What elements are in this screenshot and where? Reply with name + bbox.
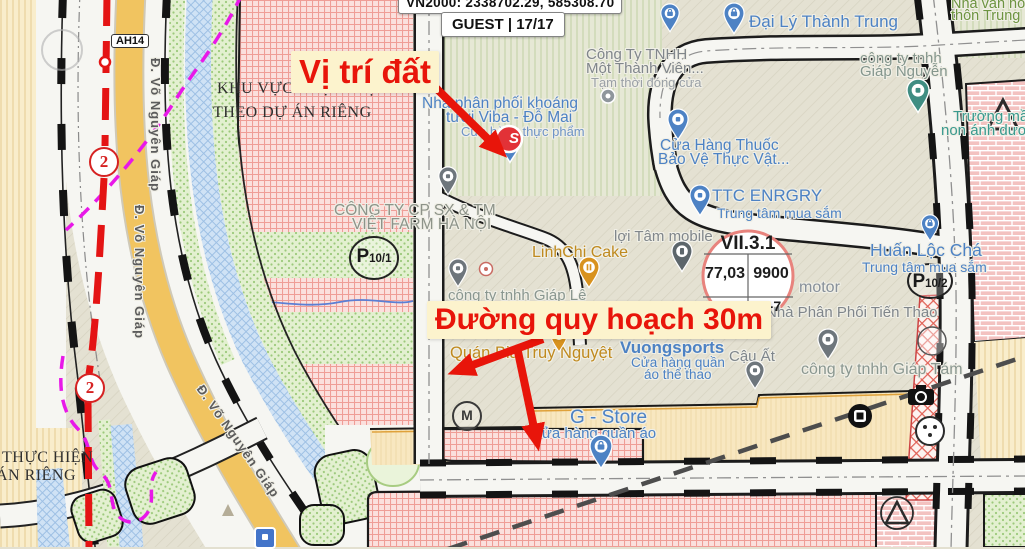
poi-label-quan-bia[interactable]: Quán Bia Truy Nguyệt <box>450 344 612 363</box>
poi-label-vuongsports-l3: áo thể thao <box>644 367 712 382</box>
pin-cau-at[interactable] <box>744 360 766 390</box>
plot-cell-a: 77,03 <box>704 265 746 283</box>
annotation-site-label: Vị trí đất <box>291 51 439 93</box>
pin-loi-tam-mobile[interactable] <box>670 240 694 273</box>
poi-label-truong-mam-non-l2[interactable]: non ánh dương <box>941 122 1025 139</box>
zone-note-sw-line1: THỰC HIỆN <box>2 449 93 467</box>
poi-label-huan-loc-l1[interactable]: Huấn Lộc Chá <box>870 240 982 261</box>
parking-sub: 10/2 <box>925 278 947 290</box>
poi-label-ttc-l1[interactable]: TTC ENRGRY <box>712 186 822 206</box>
pin-cua-hang-thuoc[interactable] <box>666 108 690 141</box>
poi-label-tien-thao[interactable]: Nhà Phân Phối Tiến Thao <box>766 304 938 321</box>
parking-badge-10-1: P10/1 <box>352 246 396 268</box>
m-letter: M <box>461 407 473 423</box>
highway-shield-ah14: AH14 <box>111 34 149 48</box>
pin-viet-farm-area[interactable] <box>447 258 469 288</box>
pin-g-store[interactable] <box>588 434 614 470</box>
road-label-vo-nguyen-giap-2: Đ. Võ Nguyên Giáp <box>132 205 147 339</box>
empty-circle-icon <box>918 327 946 355</box>
parking-sub: 10/1 <box>369 253 391 265</box>
zone-note-sw-line2: ÁN RIÊNG <box>0 467 76 485</box>
parking-badge-10-2: P10/2 <box>908 271 952 293</box>
poi-label-motor[interactable]: motor <box>799 279 840 297</box>
pin-dai-ly-thanh-trung[interactable] <box>722 2 746 35</box>
pin-ttc-enrgry[interactable] <box>688 184 712 217</box>
pin-giap-nguyen[interactable] <box>905 78 931 114</box>
parking-p: P <box>356 246 369 267</box>
poi-label-giap-nguyen-l2[interactable]: Giáp Nguyễn <box>860 63 948 80</box>
poi-label-viet-farm-l2[interactable]: VIỆT FARM HÀ NỘI <box>352 216 491 234</box>
planning-map-screenshot: { "header": { "coords": "VN2000: 2338702… <box>0 0 1025 547</box>
site-logo-letter: S <box>509 130 519 147</box>
plot-code: VII.3.1 <box>714 233 782 255</box>
pin-store-top-1[interactable] <box>659 3 681 33</box>
road-label-vo-nguyen-giap-1: Đ. Võ Nguyên Giáp <box>148 58 163 192</box>
pin-nha-phan-phoi[interactable] <box>437 166 459 196</box>
poi-label-giap-tam[interactable]: công ty tnhh Giáp Tám <box>801 361 963 379</box>
poi-label-ttc-l2: Trung tâm mua sắm <box>717 205 842 221</box>
zone-note-line2: THEO DỰ ÁN RIÊNG <box>213 104 372 122</box>
plot-cell-b: 9900 <box>750 265 792 283</box>
transit-station-icon[interactable] <box>254 527 276 549</box>
route-2-badge-1: 2 <box>89 147 119 177</box>
parking-p: P <box>912 271 925 292</box>
poi-label-loi-tam[interactable]: lợi Tâm mobile <box>614 228 713 245</box>
pin-linhchi-cake[interactable] <box>577 256 601 289</box>
poi-label-cong-ty-mtv-l3: Tạm thời đóng cửa <box>591 75 701 90</box>
poi-label-nha-van-hoa-l2[interactable]: thôn Trung <box>951 8 1020 24</box>
pin-giap-tam[interactable] <box>816 328 840 361</box>
pin-huan-loc[interactable] <box>920 214 940 242</box>
poi-label-dai-ly-thanh-trung[interactable]: Đại Lý Thành Trung <box>749 12 898 32</box>
annotation-road-label: Đường quy hoạch 30m <box>427 301 771 339</box>
poi-label-cua-hang-thuoc-l2[interactable]: Bảo Vệ Thực Vật... <box>658 151 790 169</box>
route-2-badge-2: 2 <box>75 373 105 403</box>
m-emblem-icon: M <box>452 401 482 431</box>
dots-circle-icon <box>916 417 944 445</box>
session-badge: GUEST | 17/17 <box>441 12 565 37</box>
